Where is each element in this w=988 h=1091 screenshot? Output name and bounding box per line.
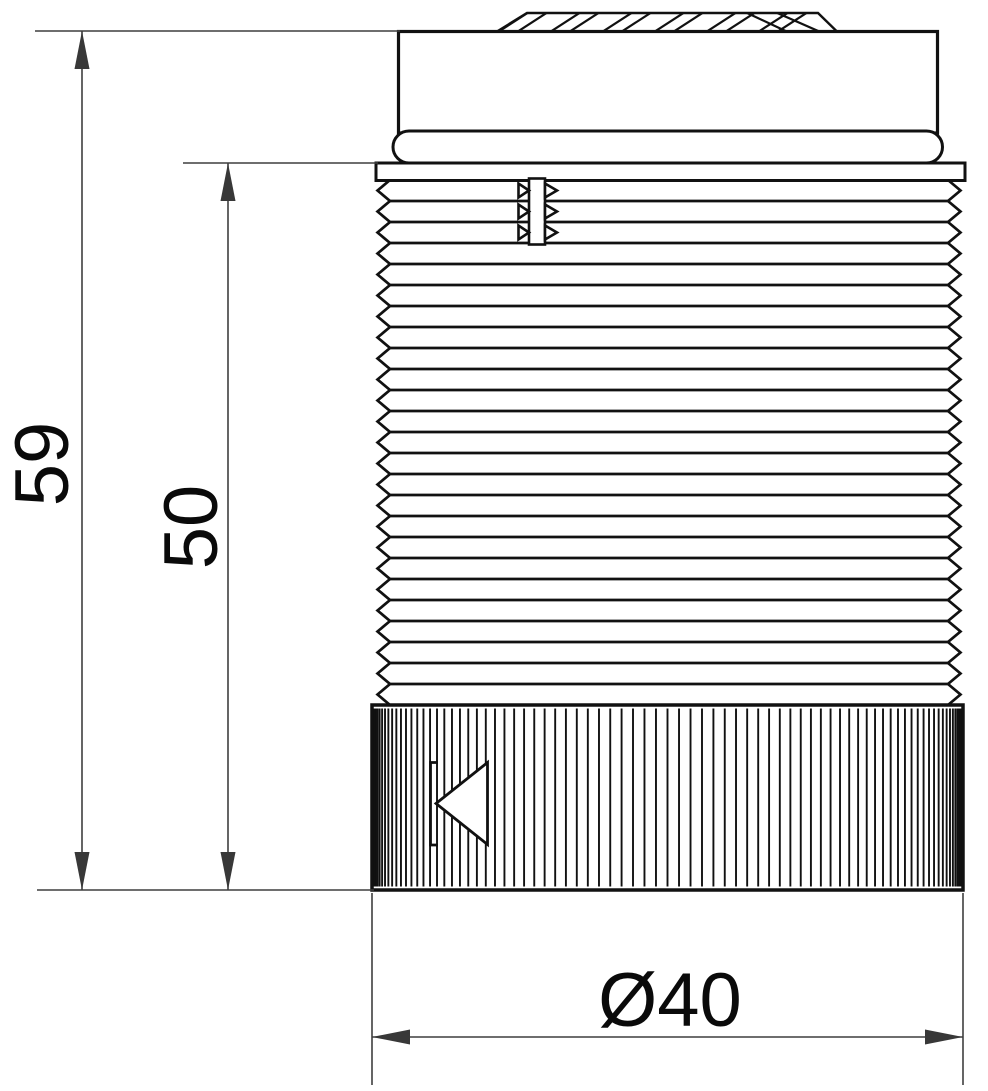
dimension-label-59: 59 (0, 422, 85, 507)
sealing-ring (393, 131, 943, 163)
drawing-sheet: 59 50 Ø40 (0, 0, 988, 1091)
dimension-label-50: 50 (149, 485, 234, 570)
lens-ribs (378, 180, 961, 705)
flange (376, 163, 965, 181)
dimension-body-height-50: 50 (37, 163, 378, 890)
cap-body (399, 32, 938, 134)
lens-seam-notch (519, 179, 558, 245)
bayonet-base (372, 705, 963, 890)
technical-drawing-signal-lamp-element: 59 50 Ø40 (0, 0, 988, 1091)
dimension-diameter-40: Ø40 (372, 893, 963, 1085)
dimension-label-diameter: Ø40 (598, 958, 742, 1043)
dimension-overall-height-59: 59 (0, 31, 400, 890)
